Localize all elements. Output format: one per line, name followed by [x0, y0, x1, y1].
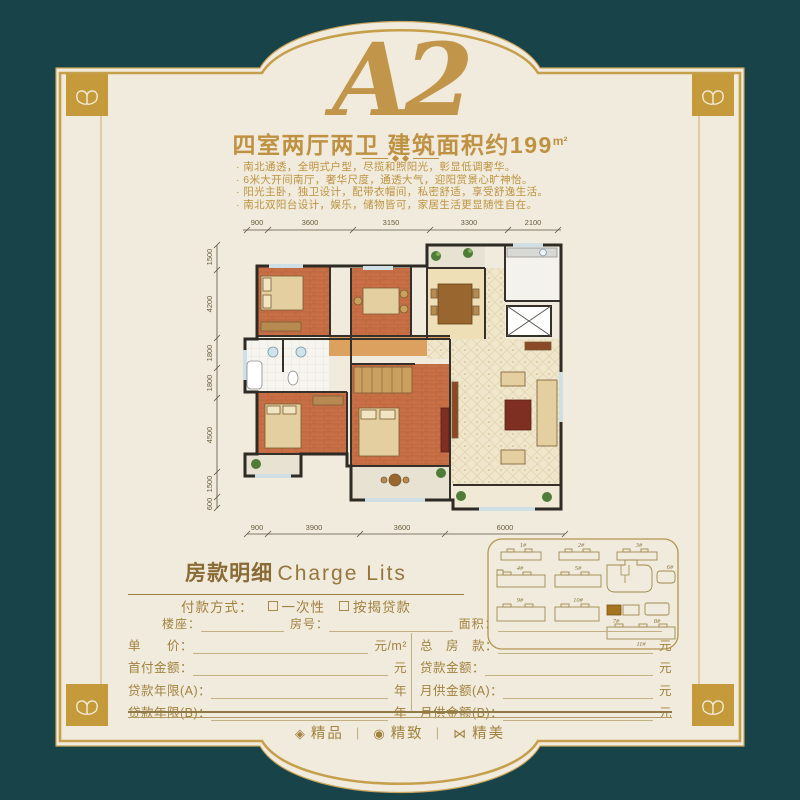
svg-text:2#: 2# [578, 542, 585, 549]
bowtie-icon: ⋈ [453, 726, 466, 741]
blank-line [498, 640, 653, 654]
footer-slogans: ◈ 精品 | ◉ 精致 | ⋈ 精美 [0, 722, 800, 743]
charge-section-title: 房款明细 Charge Lits [128, 557, 464, 595]
down-payment-row: 首付金额： 元 [128, 654, 407, 677]
svg-text:3600: 3600 [302, 218, 319, 227]
blank-line [498, 618, 662, 632]
bottom-rule [128, 711, 672, 718]
svg-text:600: 600 [205, 498, 214, 511]
blank-line [193, 662, 388, 676]
svg-text:3150: 3150 [383, 218, 400, 227]
hallway [485, 268, 505, 339]
svg-text:3900: 3900 [306, 523, 323, 532]
blank-line [211, 685, 388, 699]
loan-amount-row: 贷款金额： 元 [420, 654, 672, 677]
blank-line [329, 618, 453, 632]
svg-text:2100: 2100 [525, 218, 542, 227]
blank-line [201, 618, 284, 632]
blank-line [503, 685, 653, 699]
gem-icon: ◈ [295, 726, 305, 741]
clubhouse-outline [607, 560, 652, 592]
svg-text:1800: 1800 [205, 375, 214, 392]
checkbox-one-time [268, 601, 278, 611]
plan-code-title: A2 [0, 30, 800, 130]
column-divider [411, 633, 412, 711]
feature-bullets: · 南北通透，全明式户型，尽揽和煦阳光，彰显低调奢华。 · 6米大开间南厅，奢华… [236, 161, 576, 212]
loan-term-a-row: 贷款年限(A)： 年 [128, 676, 407, 699]
svg-text:5#: 5# [575, 565, 582, 572]
charge-right-column: 总 房 款： 元 贷款金额： 元 月供金额(A)： 元 月供金额(B)： 元 [420, 631, 672, 721]
option-mortgage: 按揭贷款 [339, 596, 411, 616]
building-field: 楼座： [162, 615, 284, 632]
svg-text:1#: 1# [520, 542, 527, 549]
unit-info-row: 楼座： 房号： 面积： [162, 615, 662, 632]
option-one-time: 一次性 [268, 596, 326, 616]
sqm-unit: m² [553, 134, 568, 148]
charge-left-column: 单 价： 元/m² 首付金额： 元 贷款年限(A)： 年 贷款年限(B)： 年 [128, 631, 407, 721]
footer-item: ⋈ 精美 [453, 722, 505, 743]
svg-text:4500: 4500 [205, 427, 214, 444]
poster: A2 四室两厅两卫 建筑面积约199m² · 南北通透，全明式户型，尽揽和煦阳光… [0, 0, 800, 800]
highlighted-building [607, 605, 621, 615]
feature-bullet: · 南北通透，全明式户型，尽揽和煦阳光，彰显低调奢华。 [236, 161, 576, 174]
medal-icon: ◉ [373, 726, 384, 741]
feature-bullet: · 南北双阳台设计，娱乐，储物皆可，家居生活更显随性自在。 [236, 199, 576, 212]
svg-text:4#: 4# [517, 565, 524, 572]
unit-price-row: 单 价： 元/m² [128, 631, 407, 654]
blank-line [485, 662, 653, 676]
svg-text:900: 900 [251, 523, 264, 532]
floor-plan: 900 3600 3150 3300 2100 1500 4200 1800 1… [195, 212, 575, 552]
blank-line [193, 640, 368, 654]
svg-text:3300: 3300 [461, 218, 478, 227]
payment-method-row: 付款方式： 一次性 按揭贷款 [128, 596, 464, 616]
feature-bullet: · 6米大开间南厅，奢华尺度，通透大气，迎阳赏景心旷神怡。 [236, 174, 576, 187]
svg-text:6#: 6# [667, 564, 674, 571]
svg-text:3600: 3600 [394, 523, 411, 532]
svg-text:1500: 1500 [205, 476, 214, 493]
svg-text:1800: 1800 [205, 345, 214, 362]
svg-text:10#: 10# [573, 597, 584, 604]
area-field: 面积： [459, 615, 662, 632]
room-number-field: 房号： [290, 615, 453, 632]
footer-item: ◈ 精品 [295, 722, 344, 743]
svg-text:3#: 3# [635, 542, 643, 549]
checkbox-mortgage [339, 601, 349, 611]
payment-method-label: 付款方式： [181, 596, 254, 616]
footer-item: ◉ 精致 [373, 722, 423, 743]
plan-summary: 四室两厅两卫 建筑面积约199m² [0, 126, 800, 160]
svg-text:900: 900 [251, 218, 264, 227]
svg-text:4200: 4200 [205, 296, 214, 313]
feature-bullet: · 阳光主卧，独卫设计，配带衣帽间，私密舒适，享受舒逸生活。 [236, 186, 576, 199]
total-price-row: 总 房 款： 元 [420, 631, 672, 654]
svg-text:1500: 1500 [205, 249, 214, 266]
monthly-payment-a-row: 月供金额(A)： 元 [420, 676, 672, 699]
footer-separator: | [356, 725, 361, 740]
footer-separator: | [436, 725, 441, 740]
svg-text:9#: 9# [517, 597, 524, 604]
